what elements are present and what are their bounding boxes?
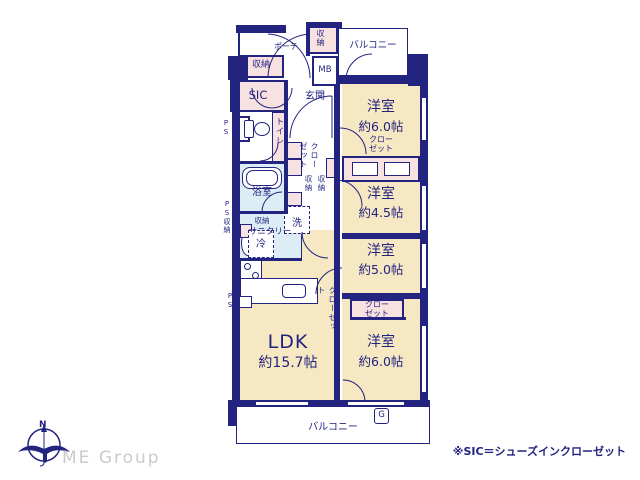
storage-outside-label: 収納 <box>222 218 232 240</box>
bedroom-50-name: 洋室 <box>342 244 420 260</box>
floor-plan-page: { "colors": { "wall": "#232380", "room_f… <box>0 0 640 480</box>
meter-box-label: MB <box>314 64 336 77</box>
bedroom-top-closet-label: クローゼット <box>358 135 404 155</box>
ldk-closet-label: クローゼット <box>316 286 338 336</box>
ldk-name: LDK <box>240 330 336 354</box>
balcony-top-label: バルコニー <box>340 40 406 52</box>
bedroom-top-name: 洋室 <box>342 99 420 116</box>
storage-entry-label: 収納 <box>240 60 282 72</box>
bedroom-45-name: 洋室 <box>342 187 420 203</box>
logo-text: ME Group <box>62 448 161 468</box>
bedroom-bottom-name: 洋室 <box>342 334 420 351</box>
hall-storage-label: 収納 <box>316 175 327 197</box>
laundry-label: 洗 <box>286 216 308 231</box>
sic-footnote: ※SIC＝シューズインクローゼット <box>430 443 626 459</box>
entrance-label: 玄関 <box>296 90 334 103</box>
refrigerator-label: 冷 <box>248 236 274 252</box>
storage-mid-label: 収納 <box>250 216 274 226</box>
bedroom-50-size: 約5.0帖 <box>342 263 420 277</box>
ldk-size: 約15.7帖 <box>240 355 336 372</box>
bathroom-label: 浴室 <box>242 186 282 199</box>
storage-top-label: 収納 <box>315 29 326 53</box>
balcony-bottom-label: バルコニー <box>240 420 426 434</box>
hall-closet-label: クローゼット <box>298 142 320 172</box>
bedroom-bottom-size: 約6.0帖 <box>342 354 420 369</box>
compass-north-label: N <box>39 420 47 430</box>
sic-label: SIC <box>232 86 284 105</box>
ps-outside-label: PS <box>223 200 231 216</box>
bedroom-45-size: 約4.5帖 <box>342 206 420 220</box>
ps-kitchen-label: PS <box>226 292 234 308</box>
hall-storage-label: 収納 <box>303 175 314 197</box>
porch-label: ポーチ <box>264 42 308 53</box>
toilet-label: トイレ <box>273 117 285 159</box>
bedroom-top-size: 約6.0帖 <box>342 119 420 134</box>
ps-toilet-label: PS <box>222 119 230 141</box>
